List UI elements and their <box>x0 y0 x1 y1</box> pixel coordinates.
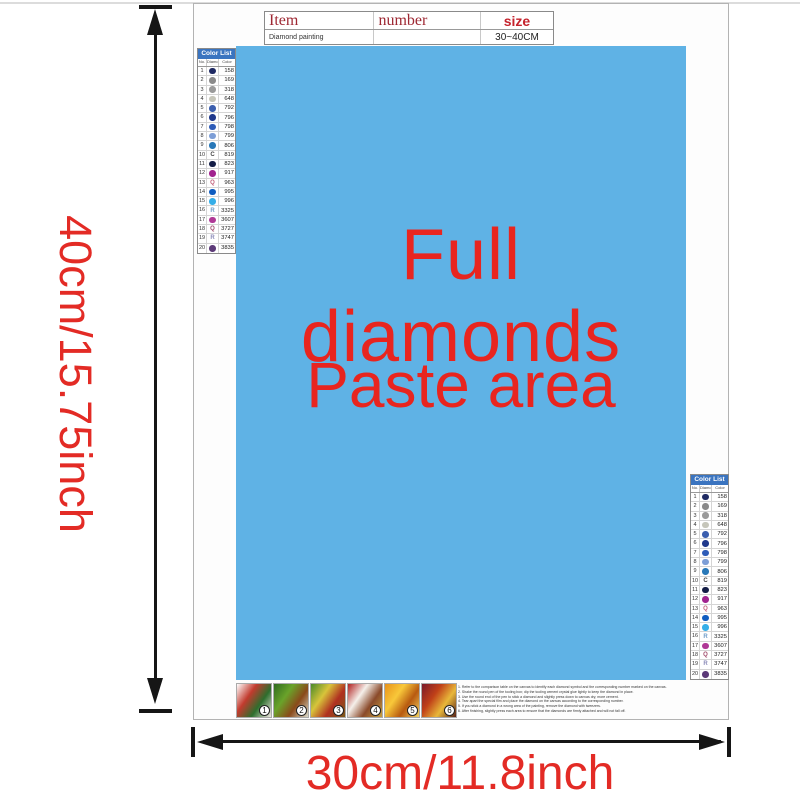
diamond-column-header: Diamond <box>700 485 712 492</box>
diamond-symbol-cell <box>207 197 219 205</box>
step-thumbnail: 1 <box>236 683 272 718</box>
color-list-title: Color List <box>691 475 728 485</box>
size-value: 30~40CM <box>481 30 553 44</box>
diamond-symbol-cell <box>207 113 219 121</box>
color-list-row: 4 648 <box>691 521 728 530</box>
diamond-symbol-cell <box>207 104 219 112</box>
diamond-dot-icon <box>702 559 709 566</box>
dmc-color-code: 963 <box>219 180 235 186</box>
diamond-dot-icon <box>702 643 709 650</box>
color-row-number: 2 <box>691 502 700 510</box>
color-row-number: 7 <box>691 549 700 557</box>
diamond-symbol-cell: C <box>700 577 712 585</box>
color-row-number: 16 <box>198 206 207 214</box>
diamond-dot-icon <box>209 124 216 131</box>
horizontal-arrow-left-cap <box>191 727 195 757</box>
color-list-rows: 1 158 2 169 3 <box>691 493 728 679</box>
dmc-color-code: 648 <box>712 522 728 528</box>
dmc-color-code: 3727 <box>219 226 235 232</box>
instructions-text-block: 1. Refer to the comparison table on the … <box>458 685 694 714</box>
arrow-down-icon <box>147 678 163 704</box>
diamond-dot-icon <box>209 245 216 252</box>
diamond-dot-icon <box>702 512 709 519</box>
dmc-color-code: 798 <box>712 550 728 556</box>
color-row-number: 15 <box>198 197 207 205</box>
color-row-number: 9 <box>198 141 207 149</box>
item-number-size-table: Item number size Diamond painting 30~40C… <box>264 11 554 45</box>
step-number-badge: 6 <box>444 705 455 716</box>
width-dimension-label: 30cm/11.8inch <box>250 746 670 800</box>
color-list-row: 3 318 <box>198 86 235 95</box>
diamond-column-header: Diamond <box>207 59 219 66</box>
color-list-row: 14 995 <box>691 614 728 623</box>
diamond-letter-symbol: Q <box>703 652 708 658</box>
diamond-symbol-cell: Q <box>207 225 219 233</box>
diamond-symbol-cell <box>700 502 712 510</box>
color-row-number: 13 <box>691 605 700 613</box>
diamond-letter-symbol: Q <box>210 226 215 232</box>
height-dimension-label: 40cm/15.75inch <box>49 207 101 541</box>
diamond-symbol-cell: R <box>700 632 712 640</box>
dmc-color-code: 996 <box>712 624 728 630</box>
color-list-row: 15 996 <box>691 623 728 632</box>
color-list-row: 6 796 <box>691 539 728 548</box>
dmc-color-code: 917 <box>219 170 235 176</box>
color-list-row: 13 Q 963 <box>198 179 235 188</box>
color-row-number: 10 <box>198 151 207 159</box>
dmc-color-code: 823 <box>219 161 235 167</box>
dmc-color-code: 799 <box>712 559 728 565</box>
color-list-row: 16 R 3325 <box>691 632 728 641</box>
color-row-number: 12 <box>198 169 207 177</box>
color-list-row: 4 648 <box>198 95 235 104</box>
color-row-number: 17 <box>691 642 700 650</box>
diamond-dot-icon <box>209 105 216 112</box>
dmc-color-code: 819 <box>712 578 728 584</box>
diamond-dot-icon <box>209 217 216 224</box>
number-value <box>374 30 481 44</box>
diamond-dot-icon <box>702 596 709 603</box>
number-header: number <box>374 12 481 29</box>
dmc-color-code: 3325 <box>219 208 235 214</box>
color-row-number: 9 <box>691 567 700 575</box>
diamond-dot-icon <box>209 68 216 75</box>
color-row-number: 1 <box>198 67 207 75</box>
color-list-row: 8 799 <box>198 132 235 141</box>
color-list-table-left: Color List No. Diamond Color 1 158 2 <box>197 48 236 254</box>
color-column-header: Color <box>219 59 235 66</box>
dmc-color-code: 806 <box>712 569 728 575</box>
color-list-row: 10 C 819 <box>198 151 235 160</box>
color-list-row: 17 3607 <box>198 216 235 225</box>
color-row-number: 3 <box>691 512 700 520</box>
color-list-row: 2 169 <box>691 502 728 511</box>
dmc-color-code: 792 <box>219 105 235 111</box>
diamond-letter-symbol: R <box>210 208 214 214</box>
diamond-symbol-cell: Q <box>700 651 712 659</box>
color-row-number: 5 <box>198 104 207 112</box>
diamond-dot-icon <box>702 587 709 594</box>
instruction-step-thumbnails: 1 2 3 4 5 6 <box>236 683 457 718</box>
dmc-color-code: 158 <box>219 68 235 74</box>
diamond-symbol-cell <box>207 244 219 253</box>
color-column-header: Color <box>712 485 728 492</box>
color-list-row: 18 Q 3727 <box>691 651 728 660</box>
dmc-color-code: 995 <box>219 189 235 195</box>
color-list-row: 18 Q 3727 <box>198 225 235 234</box>
dmc-color-code: 3835 <box>712 671 728 677</box>
diamond-dot-icon <box>209 161 216 168</box>
diamond-letter-symbol: Q <box>703 606 708 612</box>
step-thumbnail: 5 <box>384 683 420 718</box>
diamond-dot-icon <box>209 77 216 84</box>
color-row-number: 18 <box>691 651 700 659</box>
step-number-badge: 1 <box>259 705 270 716</box>
no-column-header: No. <box>691 485 700 492</box>
dmc-color-code: 3607 <box>712 643 728 649</box>
color-row-number: 5 <box>691 530 700 538</box>
color-row-number: 7 <box>198 123 207 131</box>
diamond-symbol-cell <box>207 160 219 168</box>
dmc-color-code: 169 <box>219 77 235 83</box>
diamond-symbol-cell <box>700 595 712 603</box>
diamond-dot-icon <box>209 189 216 196</box>
dmc-color-code: 318 <box>219 87 235 93</box>
color-row-number: 11 <box>691 586 700 594</box>
color-list-rows: 1 158 2 169 3 <box>198 67 235 253</box>
diamond-letter-symbol: Q <box>210 180 215 186</box>
step-thumbnail: 4 <box>347 683 383 718</box>
dmc-color-code: 3747 <box>219 235 235 241</box>
diamond-letter-symbol: R <box>703 634 707 640</box>
diamond-symbol-cell <box>700 493 712 501</box>
color-row-number: 6 <box>691 539 700 547</box>
color-list-row: 12 917 <box>198 169 235 178</box>
diamond-symbol-cell <box>700 623 712 631</box>
diamond-symbol-cell <box>207 141 219 149</box>
diamond-symbol-cell <box>207 132 219 140</box>
color-row-number: 1 <box>691 493 700 501</box>
step-thumbnail: 2 <box>273 683 309 718</box>
diamond-symbol-cell <box>700 539 712 547</box>
color-list-title: Color List <box>198 49 235 59</box>
color-row-number: 19 <box>198 234 207 242</box>
diamond-dot-icon <box>702 550 709 557</box>
dmc-color-code: 648 <box>219 96 235 102</box>
diamond-symbol-cell <box>700 558 712 566</box>
diamond-dot-icon <box>702 624 709 631</box>
dmc-color-code: 318 <box>712 513 728 519</box>
diamond-dot-icon <box>702 671 709 678</box>
color-list-row: 17 3607 <box>691 642 728 651</box>
color-list-row: 5 792 <box>691 530 728 539</box>
diamond-symbol-cell <box>207 188 219 196</box>
color-list-column-headers: No. Diamond Color <box>198 59 235 67</box>
dmc-color-code: 792 <box>712 531 728 537</box>
color-row-number: 3 <box>198 86 207 94</box>
color-row-number: 4 <box>198 95 207 103</box>
no-column-header: No. <box>198 59 207 66</box>
diamond-symbol-cell <box>700 567 712 575</box>
item-header: Item <box>265 12 374 29</box>
color-row-number: 6 <box>198 113 207 121</box>
diamond-symbol-cell: R <box>207 206 219 214</box>
color-row-number: 11 <box>198 160 207 168</box>
product-size-chart-image: 40cm/15.75inch 30cm/11.8inch Item number… <box>0 0 800 800</box>
color-list-row: 9 806 <box>691 567 728 576</box>
diamond-symbol-cell <box>207 169 219 177</box>
diamond-symbol-cell <box>700 549 712 557</box>
vertical-arrow-bottom-cap <box>139 709 172 713</box>
color-row-number: 13 <box>198 179 207 187</box>
dmc-color-code: 963 <box>712 606 728 612</box>
diamond-symbol-cell <box>700 614 712 622</box>
diamond-dot-icon <box>209 198 216 205</box>
dmc-color-code: 3835 <box>219 245 235 251</box>
instruction-line: 6. After finishing, slightly press each … <box>458 709 694 714</box>
color-list-row: 19 R 3747 <box>691 660 728 669</box>
color-list-row: 14 995 <box>198 188 235 197</box>
item-table-header-row: Item number size <box>265 12 553 30</box>
color-list-row: 20 3835 <box>691 670 728 679</box>
color-row-number: 20 <box>691 670 700 679</box>
color-row-number: 12 <box>691 595 700 603</box>
dmc-color-code: 798 <box>219 124 235 130</box>
dmc-color-code: 917 <box>712 596 728 602</box>
color-list-row: 20 3835 <box>198 244 235 253</box>
diamond-symbol-cell <box>700 512 712 520</box>
color-list-row: 11 823 <box>691 586 728 595</box>
color-list-row: 5 792 <box>198 104 235 113</box>
color-list-table-right: Color List No. Diamond Color 1 158 2 <box>690 474 729 680</box>
diamond-symbol-cell: Q <box>700 605 712 613</box>
step-thumbnail: 3 <box>310 683 346 718</box>
dmc-color-code: 169 <box>712 503 728 509</box>
color-list-row: 8 799 <box>691 558 728 567</box>
diamond-dot-icon <box>209 86 216 93</box>
diamond-dot-icon <box>209 96 216 103</box>
diamond-symbol-cell <box>207 67 219 75</box>
vertical-arrow-line <box>154 24 157 684</box>
diamond-symbol-cell: R <box>207 234 219 242</box>
dmc-color-code: 799 <box>219 133 235 139</box>
color-list-row: 12 917 <box>691 595 728 604</box>
horizontal-arrow-right-cap <box>727 727 731 757</box>
step-number-badge: 4 <box>370 705 381 716</box>
color-row-number: 2 <box>198 76 207 84</box>
color-list-row: 10 C 819 <box>691 577 728 586</box>
dmc-color-code: 806 <box>219 143 235 149</box>
color-row-number: 4 <box>691 521 700 529</box>
step-number-badge: 3 <box>333 705 344 716</box>
color-list-row: 9 806 <box>198 141 235 150</box>
diamond-symbol-cell <box>700 586 712 594</box>
item-value: Diamond painting <box>265 30 374 44</box>
diamond-dot-icon <box>209 170 216 177</box>
color-list-row: 6 796 <box>198 113 235 122</box>
color-row-number: 14 <box>691 614 700 622</box>
diamond-symbol-cell: R <box>700 660 712 668</box>
dmc-color-code: 819 <box>219 152 235 158</box>
color-list-row: 2 169 <box>198 76 235 85</box>
diamond-symbol-cell <box>700 530 712 538</box>
diamond-letter-symbol: C <box>703 578 707 584</box>
dmc-color-code: 796 <box>712 541 728 547</box>
color-row-number: 17 <box>198 216 207 224</box>
step-number-badge: 5 <box>407 705 418 716</box>
step-thumbnail: 6 <box>421 683 457 718</box>
diamond-painting-canvas-sheet: Item number size Diamond painting 30~40C… <box>193 3 729 720</box>
diamond-dot-icon <box>702 568 709 575</box>
color-list-row: 3 318 <box>691 512 728 521</box>
step-number-badge: 2 <box>296 705 307 716</box>
diamond-symbol-cell <box>700 670 712 679</box>
dmc-color-code: 3747 <box>712 661 728 667</box>
dmc-color-code: 158 <box>712 494 728 500</box>
color-list-row: 1 158 <box>691 493 728 502</box>
diamond-symbol-cell <box>207 76 219 84</box>
diamond-dot-icon <box>209 114 216 121</box>
color-row-number: 8 <box>691 558 700 566</box>
diamond-letter-symbol: C <box>210 152 214 158</box>
color-list-row: 7 798 <box>198 123 235 132</box>
diamond-dot-icon <box>209 142 216 149</box>
arrow-right-icon <box>699 734 725 750</box>
diamond-dot-icon <box>209 133 216 140</box>
diamond-letter-symbol: R <box>210 235 214 241</box>
color-list-row: 16 R 3325 <box>198 206 235 215</box>
color-list-row: 13 Q 963 <box>691 605 728 614</box>
paste-area-title-line2: Paste area <box>236 348 686 422</box>
diamond-dot-icon <box>702 615 709 622</box>
color-row-number: 18 <box>198 225 207 233</box>
diamond-dot-icon <box>702 494 709 501</box>
diamond-dot-icon <box>702 503 709 510</box>
diamond-dot-icon <box>702 531 709 538</box>
item-table-data-row: Diamond painting 30~40CM <box>265 30 553 44</box>
color-row-number: 19 <box>691 660 700 668</box>
color-list-column-headers: No. Diamond Color <box>691 485 728 493</box>
dmc-color-code: 995 <box>712 615 728 621</box>
diamond-dot-icon <box>702 540 709 547</box>
diamond-symbol-cell <box>700 521 712 529</box>
diamond-symbol-cell: C <box>207 151 219 159</box>
color-row-number: 10 <box>691 577 700 585</box>
diamond-letter-symbol: R <box>703 661 707 667</box>
color-list-row: 11 823 <box>198 160 235 169</box>
dmc-color-code: 3325 <box>712 634 728 640</box>
color-row-number: 8 <box>198 132 207 140</box>
dmc-color-code: 996 <box>219 198 235 204</box>
horizontal-arrow-line <box>203 740 721 743</box>
color-row-number: 15 <box>691 623 700 631</box>
diamond-dot-icon <box>702 522 709 529</box>
color-list-row: 1 158 <box>198 67 235 76</box>
color-row-number: 20 <box>198 244 207 253</box>
dmc-color-code: 3727 <box>712 652 728 658</box>
color-row-number: 16 <box>691 632 700 640</box>
size-header: size <box>481 12 553 29</box>
diamond-symbol-cell: Q <box>207 179 219 187</box>
diamond-symbol-cell <box>207 86 219 94</box>
diamond-symbol-cell <box>207 95 219 103</box>
dmc-color-code: 796 <box>219 115 235 121</box>
color-list-row: 7 798 <box>691 549 728 558</box>
color-list-row: 19 R 3747 <box>198 234 235 243</box>
color-row-number: 14 <box>198 188 207 196</box>
diamond-symbol-cell <box>207 216 219 224</box>
dmc-color-code: 3607 <box>219 217 235 223</box>
full-diamonds-paste-area: Full diamonds Paste area <box>236 46 686 680</box>
color-list-row: 15 996 <box>198 197 235 206</box>
diamond-symbol-cell <box>700 642 712 650</box>
dmc-color-code: 823 <box>712 587 728 593</box>
diamond-symbol-cell <box>207 123 219 131</box>
